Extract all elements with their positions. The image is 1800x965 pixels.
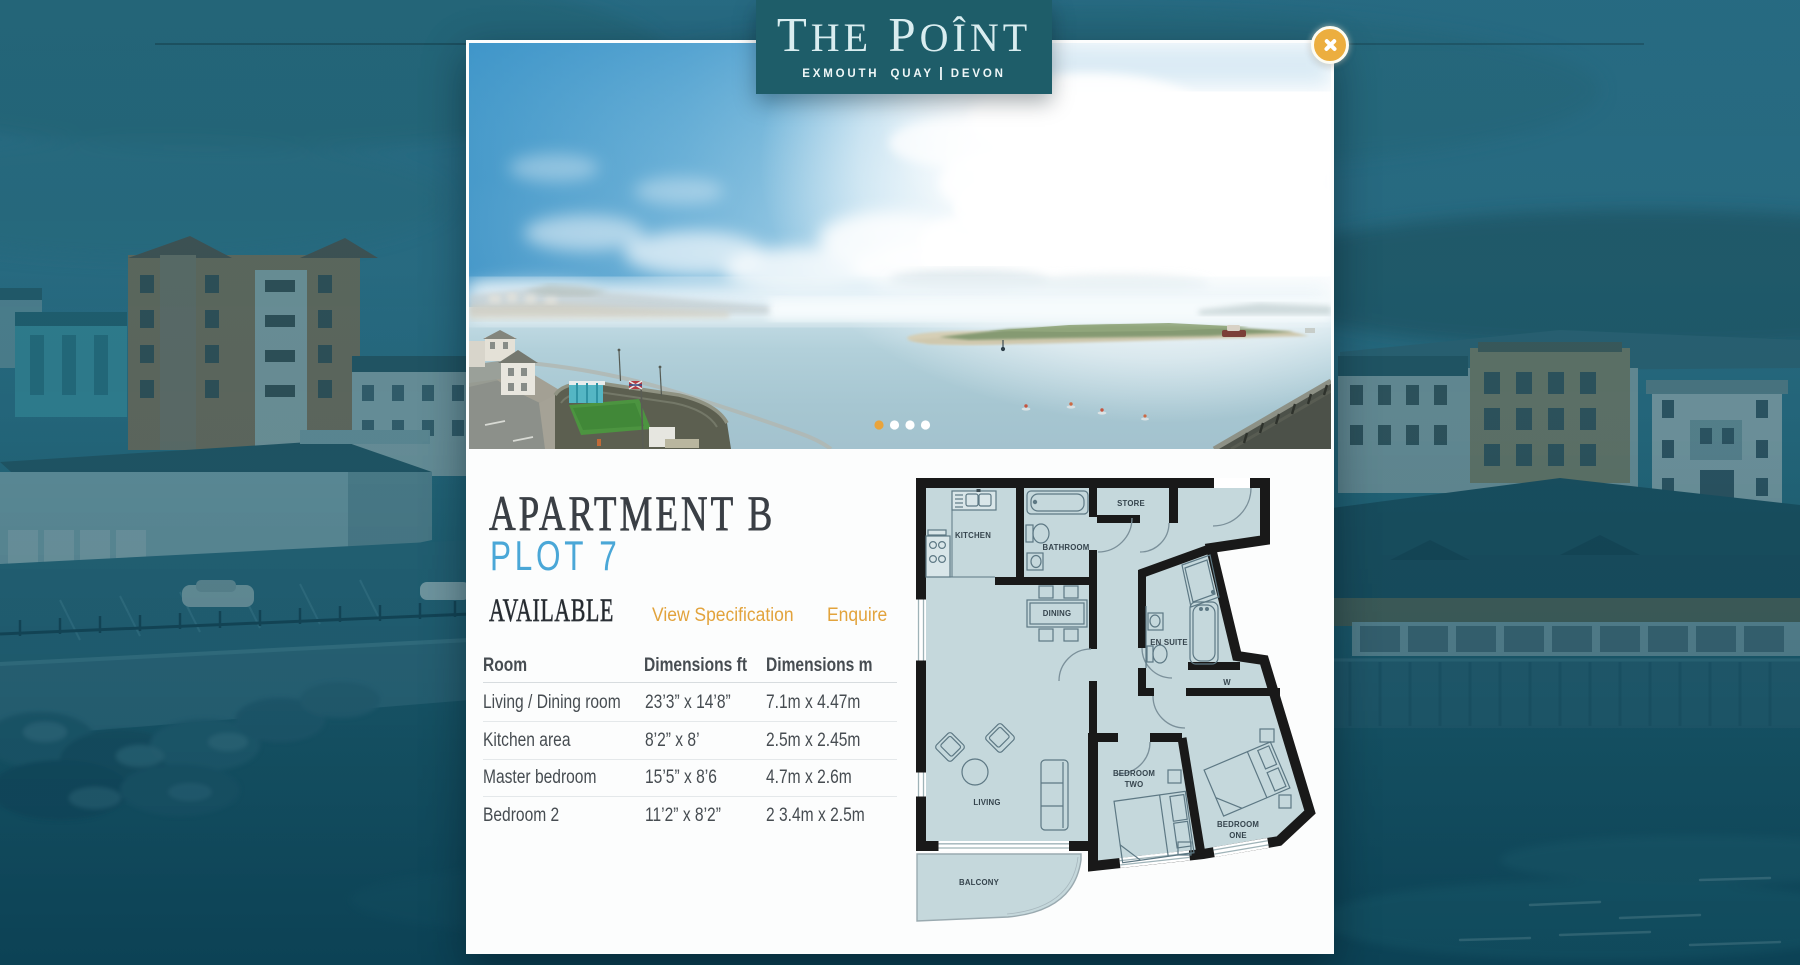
svg-text:BEDROOM: BEDROOM xyxy=(1113,769,1155,778)
svg-text:DINING: DINING xyxy=(1043,609,1072,618)
svg-text:STORE: STORE xyxy=(1117,499,1145,508)
svg-text:EN SUITE: EN SUITE xyxy=(1150,638,1188,647)
svg-text:ONE: ONE xyxy=(1229,831,1247,840)
svg-text:BEDROOM: BEDROOM xyxy=(1217,820,1259,829)
svg-text:BALCONY: BALCONY xyxy=(959,878,1000,887)
svg-text:KITCHEN: KITCHEN xyxy=(955,531,991,540)
svg-text:BATHROOM: BATHROOM xyxy=(1043,543,1090,552)
svg-text:TWO: TWO xyxy=(1125,780,1144,789)
svg-text:W: W xyxy=(1223,678,1231,687)
svg-text:LIVING: LIVING xyxy=(973,798,1000,807)
